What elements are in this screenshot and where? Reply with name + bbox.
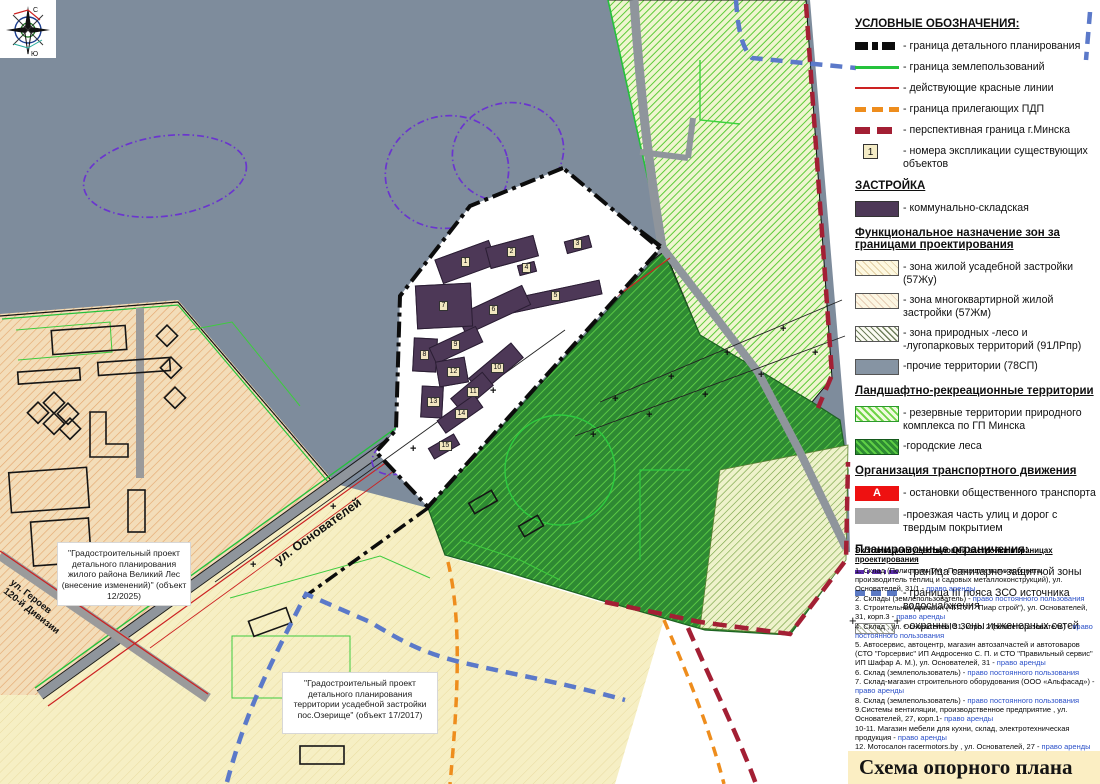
legend-item-label: - действующие красные линии — [903, 81, 1054, 95]
legend-section: Организация транспортного движения А - о… — [851, 465, 1097, 534]
explication-item-tenure: право аренды — [997, 658, 1046, 667]
svg-text:+: + — [668, 371, 674, 383]
explication-item-text: 5. Автосервис, автоцентр, магазин автоза… — [855, 640, 1093, 667]
building-number-label: 8 — [420, 350, 429, 360]
legend-item-label: - граница детального планирования — [903, 39, 1080, 53]
explication-item: 7. Склад-магазин строительного оборудова… — [855, 677, 1097, 695]
explication-item-tenure: право аренды — [896, 612, 945, 621]
building-number-label: 10 — [491, 363, 504, 373]
legend-item: - зона природных -лесо и -лугопарковых т… — [855, 326, 1097, 352]
legend-item-label: - зона многоквартирной жилой застройки (… — [903, 293, 1097, 319]
legend-section-title: Организация транспортного движения — [855, 465, 1097, 477]
legend-item-label: - граница землепользований — [903, 60, 1045, 74]
legend-item: - граница детального планирования — [855, 39, 1097, 53]
legend-item: - зона многоквартирной жилой застройки (… — [855, 293, 1097, 319]
svg-text:+: + — [780, 323, 786, 335]
legend-item: - граница землепользований — [855, 60, 1097, 74]
legend-swatch — [855, 201, 899, 217]
legend-swatch — [855, 260, 899, 276]
explication-item: 9.Системы вентиляции, производственное п… — [855, 705, 1097, 723]
explication-item: 12. Мотосалон racermotors.by , ул. Основ… — [855, 742, 1097, 751]
explication-item-text: 2. Склады (землепользователь) - — [855, 594, 973, 603]
legend-swatch — [855, 107, 899, 112]
legend-item-label: - коммунально-складская — [903, 201, 1029, 215]
explication-item-tenure: право постоянного пользования — [973, 594, 1085, 603]
building-number-label: 1 — [461, 257, 470, 267]
legend-swatch: А — [855, 486, 899, 501]
title-block: Схема опорного плана — [848, 751, 1100, 784]
building-number-label: 5 — [551, 291, 560, 301]
legend-swatch — [855, 293, 899, 309]
legend-item-label: -проезжая часть улиц и дорог с твердым п… — [903, 508, 1097, 534]
svg-text:+: + — [724, 347, 730, 359]
building-number-label: 15 — [439, 441, 452, 451]
explication-item-tenure: право аренды — [1042, 742, 1091, 751]
svg-text:+: + — [758, 369, 764, 381]
legend-item: -проезжая часть улиц и дорог с твердым п… — [855, 508, 1097, 534]
plan-title: Схема опорного плана — [848, 755, 1073, 780]
note-box-ozerishche: "Градостроительный проект детального пла… — [282, 672, 438, 734]
legend-swatch — [855, 42, 899, 50]
explication-item: 4. Склад , ул. Основателей, 31, корп. 2 … — [855, 622, 1097, 640]
legend-item-label: - номера экспликации существующих объект… — [903, 144, 1097, 170]
legend-swatch — [855, 406, 899, 422]
legend-item: - граница прилегающих ПДП — [855, 102, 1097, 116]
building-number-label: 3 — [573, 239, 582, 249]
legend-swatch: 1 — [863, 144, 878, 159]
building-number-label: 2 — [507, 247, 516, 257]
svg-text:+: + — [812, 347, 818, 359]
building-number-label: 13 — [427, 397, 440, 407]
explication-item-tenure: право аренды — [898, 733, 947, 742]
legend-item: - перспективная граница г.Минска — [855, 123, 1097, 137]
explication-item-text: 7. Склад-магазин строительного оборудова… — [855, 677, 1095, 686]
legend-section: ЗАСТРОЙКА - коммунально-складская — [851, 180, 1097, 217]
building-number-label: 4 — [522, 263, 531, 273]
explication-item-tenure: право аренды — [944, 714, 993, 723]
legend-section: Функциональное назначение зон за граница… — [851, 227, 1097, 375]
legend-swatch — [855, 87, 899, 90]
building-number-label: 6 — [489, 305, 498, 315]
legend-swatch — [855, 127, 899, 134]
building-number-label: 11 — [467, 387, 479, 397]
compass-south-label: Ю — [31, 51, 38, 58]
explication-item: 2. Склады (землепользователь) - право по… — [855, 594, 1097, 603]
legend-swatch — [855, 439, 899, 455]
explication-item-text: 6. Склад (землепользователь) - — [855, 668, 967, 677]
svg-text:+: + — [702, 389, 708, 401]
plan-sheet: ++++ +++++ ++++ — [0, 0, 1100, 784]
explication-item-text: 8. Склад (землепользователь) - — [855, 696, 967, 705]
svg-text:+: + — [250, 559, 256, 571]
explication-header: Экспликация существующей застройки в гра… — [855, 546, 1097, 564]
legend-item-label: - перспективная граница г.Минска — [903, 123, 1070, 137]
legend-swatch — [855, 359, 899, 375]
building-number-label: 14 — [455, 409, 468, 419]
explication-item-tenure: право аренды — [926, 584, 975, 593]
legend-item-label: - резервные территории природного компле… — [903, 406, 1097, 432]
svg-text:+: + — [612, 393, 618, 405]
explication-item: 8. Склад (землепользователь) - право пос… — [855, 696, 1097, 705]
legend-section: Ландшафтно-рекреационные территории - ре… — [851, 385, 1097, 455]
explication-item-text: 10-11. Магазин мебели для кухни, склад, … — [855, 724, 1069, 742]
explication-item-text: 12. Мотосалон racermotors.by , ул. Основ… — [855, 742, 1042, 751]
explication-item: 10-11. Магазин мебели для кухни, склад, … — [855, 724, 1097, 742]
legend-item-label: -городские леса — [903, 439, 982, 453]
legend-swatch — [855, 508, 899, 524]
explication-item-text: 3. Строительный магазин (ЧПТУП "Пиар стр… — [855, 603, 1087, 621]
explication-item-text: 4. Склад , ул. Основателей, 31, корп. 2 … — [855, 622, 1072, 631]
legend-item-label: - граница прилегающих ПДП — [903, 102, 1044, 116]
legend-item: - зона жилой усадебной застройки (57Жу) — [855, 260, 1097, 286]
explication-item: 3. Строительный магазин (ЧПТУП "Пиар стр… — [855, 603, 1097, 621]
compass-north-label: С — [33, 7, 38, 14]
legend-section: УСЛОВНЫЕ ОБОЗНАЧЕНИЯ: - граница детально… — [851, 18, 1097, 170]
legend-section-title: УСЛОВНЫЕ ОБОЗНАЧЕНИЯ: — [855, 18, 1097, 30]
legend-item: - коммунально-складская — [855, 201, 1097, 217]
legend-item: -городские леса — [855, 439, 1097, 455]
explication-item-tenure: право постоянного пользования — [967, 696, 1079, 705]
explication-item: 5. Автосервис, автоцентр, магазин автоза… — [855, 640, 1097, 667]
compass-icon: С Ю — [0, 0, 56, 58]
note-box-velikiy-les: "Градостроительный проект детального пла… — [57, 542, 191, 606]
building-number-label: 12 — [447, 367, 460, 377]
explication-item-tenure: право постоянного пользования — [967, 668, 1079, 677]
explication-item: 1. Склад (Полистрим ТМ - Поставщик полик… — [855, 566, 1097, 593]
explication-panel: Экспликация существующей застройки в гра… — [855, 546, 1097, 784]
svg-text:+: + — [590, 429, 596, 441]
legend-item: А - остановки общественного транспорта — [855, 486, 1097, 501]
legend-item: - резервные территории природного компле… — [855, 406, 1097, 432]
legend-section-title: Ландшафтно-рекреационные территории — [855, 385, 1097, 397]
legend-item: - действующие красные линии — [855, 81, 1097, 95]
svg-text:+: + — [410, 443, 416, 455]
legend-swatch — [855, 66, 899, 69]
svg-text:+: + — [646, 409, 652, 421]
legend-section-title: Функциональное назначение зон за граница… — [855, 227, 1097, 251]
legend-item-label: - зона жилой усадебной застройки (57Жу) — [903, 260, 1097, 286]
legend-swatch — [855, 326, 899, 342]
legend-item-label: - остановки общественного транспорта — [903, 486, 1096, 500]
compass-box: С Ю — [0, 0, 56, 58]
legend-item-label: - зона природных -лесо и -лугопарковых т… — [903, 326, 1097, 352]
explication-item: 6. Склад (землепользователь) - право пос… — [855, 668, 1097, 677]
explication-item-tenure: право аренды — [855, 686, 904, 695]
legend-item: 1 - номера экспликации существующих объе… — [855, 144, 1097, 170]
building-number-label: 7 — [439, 301, 448, 311]
legend-item-label: -прочие территории (78СП) — [903, 359, 1038, 373]
legend-item: -прочие территории (78СП) — [855, 359, 1097, 375]
legend-section-title: ЗАСТРОЙКА — [855, 180, 1097, 192]
building-number-label: 9 — [451, 340, 460, 350]
